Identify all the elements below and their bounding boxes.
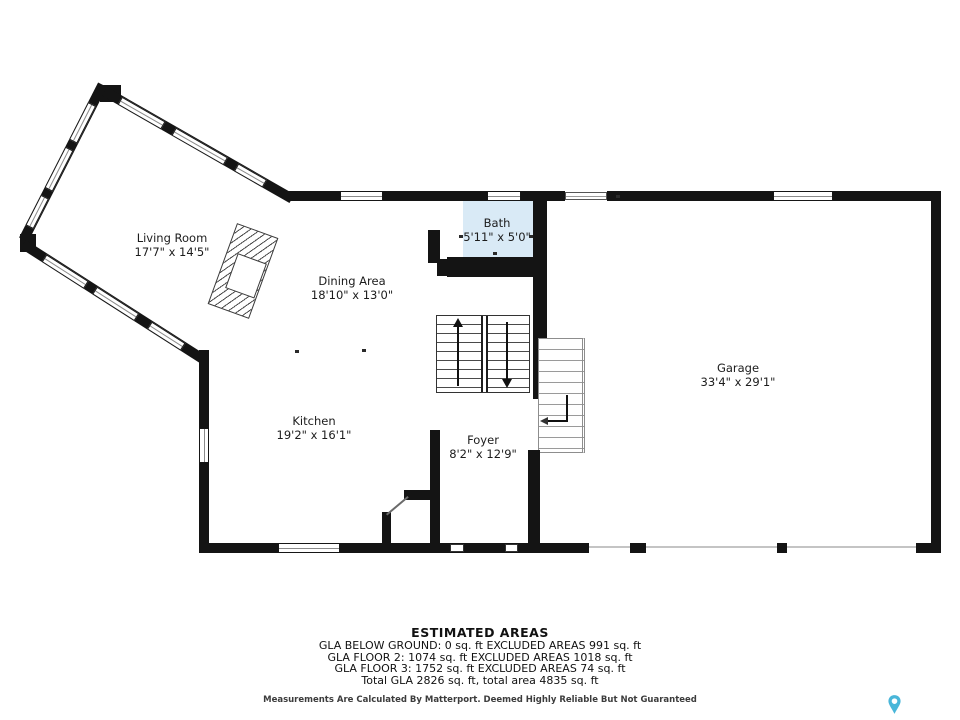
stairs-down-arrow-head xyxy=(502,379,512,388)
wall-diagonal-top-left xyxy=(19,82,107,242)
room-name: Bath xyxy=(463,216,531,230)
tick-mark xyxy=(362,349,366,352)
window-top-1 xyxy=(340,191,383,201)
window xyxy=(92,286,139,321)
fireplace-firebox xyxy=(225,253,267,298)
wall-garage-right xyxy=(931,191,941,553)
door-jamb-front-left xyxy=(450,544,464,552)
staircase-divider xyxy=(481,316,488,392)
estimated-areas-title: ESTIMATED AREAS xyxy=(0,625,960,640)
window-bottom xyxy=(278,543,340,553)
window-kitchen-left xyxy=(199,428,209,463)
room-name: Kitchen xyxy=(277,414,352,428)
garage-stairs-arrow-vertical xyxy=(566,395,568,422)
gla-below-ground-line: GLA BELOW GROUND: 0 sq. ft EXCLUDED AREA… xyxy=(0,640,960,652)
room-dimensions: 5'11" x 5'0" xyxy=(463,230,531,244)
room-dimensions: 19'2" x 16'1" xyxy=(277,428,352,442)
wall-garage-bottom-corner xyxy=(916,543,941,553)
window xyxy=(42,254,89,289)
door-jamb-front-right xyxy=(505,544,518,552)
room-dimensions: 8'2" x 12'9" xyxy=(449,447,517,461)
room-name: Living Room xyxy=(135,231,210,245)
wall-diagonal-top-right xyxy=(102,87,294,203)
tick-mark xyxy=(295,350,299,353)
window xyxy=(147,321,186,350)
staircase-garage xyxy=(538,338,585,453)
window xyxy=(45,147,74,192)
room-label-dining-area: Dining Area 18'10" x 13'0" xyxy=(311,274,393,302)
floor-plan-canvas: Living Room 17'7" x 14'5" Dining Area 18… xyxy=(0,0,960,720)
tick-mark xyxy=(493,252,497,255)
staircase-main xyxy=(436,315,530,393)
room-label-bath: Bath 5'11" x 5'0" xyxy=(463,216,531,244)
tick-mark xyxy=(616,195,620,198)
stairs-down-arrow-line xyxy=(506,322,508,380)
room-dimensions: 17'7" x 14'5" xyxy=(135,245,210,259)
window xyxy=(172,127,229,165)
wall-hall-bottom xyxy=(437,259,462,276)
window-top-thin xyxy=(565,192,607,200)
wall-closet-left xyxy=(382,512,391,546)
room-name: Dining Area xyxy=(311,274,393,288)
room-name: Garage xyxy=(701,361,776,375)
room-label-foyer: Foyer 8'2" x 12'9" xyxy=(449,433,517,461)
window xyxy=(69,102,96,144)
room-label-kitchen: Kitchen 19'2" x 16'1" xyxy=(277,414,352,442)
window xyxy=(234,163,267,187)
fireplace xyxy=(208,223,279,319)
matterport-pin-icon xyxy=(887,694,902,719)
room-dimensions: 18'10" x 13'0" xyxy=(311,288,393,302)
window xyxy=(26,195,49,229)
room-label-living-room: Living Room 17'7" x 14'5" xyxy=(135,231,210,259)
room-dimensions: 33'4" x 29'1" xyxy=(701,375,776,389)
estimated-areas-block: ESTIMATED AREAS GLA BELOW GROUND: 0 sq. … xyxy=(0,625,960,705)
closet-door-swing xyxy=(386,496,408,515)
window-top-bath xyxy=(487,191,521,201)
room-label-garage: Garage 33'4" x 29'1" xyxy=(701,361,776,389)
garage-stairs-arrow-head xyxy=(540,417,548,425)
wall-garage-stub-2 xyxy=(777,543,787,553)
window xyxy=(118,96,166,129)
wall-foyer-garage xyxy=(528,450,540,546)
wall-closet-top xyxy=(404,490,440,500)
stairs-up-arrow-head xyxy=(453,318,463,327)
wall-kitchen-foyer xyxy=(430,430,440,546)
window-garage-top xyxy=(773,191,833,201)
measurement-disclaimer: Measurements Are Calculated By Matterpor… xyxy=(0,695,960,705)
stairs-up-arrow-line xyxy=(457,326,459,386)
garage-stairs-arrow-horizontal xyxy=(547,420,567,422)
total-gla-line: Total GLA 2826 sq. ft, total area 4835 s… xyxy=(0,675,960,687)
wall-top-left-section xyxy=(288,191,565,201)
room-name: Foyer xyxy=(449,433,517,447)
wall-garage-stub-1 xyxy=(630,543,646,553)
